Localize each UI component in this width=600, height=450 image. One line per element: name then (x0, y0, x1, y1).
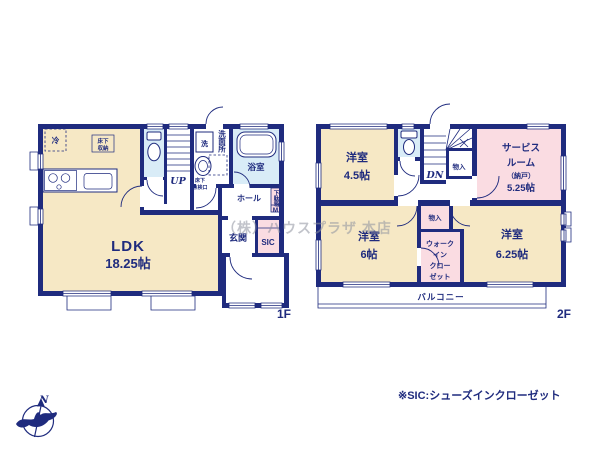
inspection-label-1: 床下 (195, 177, 205, 184)
bathroom-label: 浴室 (247, 162, 265, 172)
stairs-up-label: UP (170, 176, 186, 187)
room-6 (321, 206, 417, 282)
balcony-label: バルコニー (417, 292, 464, 302)
hall-label: ホール (237, 194, 261, 203)
room625-size-label: 6.25帖 (496, 247, 528, 261)
floor1-label: 1F (277, 307, 291, 321)
watermark-text: （株）ハウスプラザ 本店 (222, 220, 392, 236)
floor-storage-label-2: 収納 (97, 144, 109, 152)
toilet-bowl-icon-2f (404, 140, 415, 155)
fridge-label: 冷 (52, 135, 60, 145)
room45-label: 洋室 (346, 150, 368, 164)
sic-label: SIC (261, 238, 275, 247)
wic-label-4: ゼット (430, 272, 451, 281)
toilet-bowl-icon-1f (148, 143, 160, 161)
inspection-label-2: 点検口 (192, 184, 207, 191)
washer-label: 洗 (201, 139, 208, 148)
floor-storage-label-1: 床下 (97, 137, 109, 145)
wic-label-1: ウォーク (426, 239, 454, 248)
kitchen-counter (43, 169, 117, 192)
floorplan-page: LDK 18.25帖 冷 床下 収納 UP 洗 洗面所 床下 点検口 浴室 ホー… (0, 0, 600, 450)
wic-label-2: イン (433, 251, 447, 259)
compass-bird-icon (16, 412, 57, 428)
compass: N (16, 395, 57, 437)
shoe-box-m-label: M (273, 207, 278, 214)
floorplan-image: LDK 18.25帖 冷 床下 収納 UP 洗 洗面所 床下 点検口 浴室 ホー… (0, 0, 600, 450)
service-room-size-label: 5.25帖 (507, 182, 535, 194)
ldk-size-label: 18.25帖 (105, 256, 151, 271)
footnote-sic: ※SIC:シューズインクローゼット (398, 388, 561, 402)
porch-1f (226, 257, 284, 303)
toilet-tank-icon-1f (147, 132, 161, 140)
stairs-dn-label: DN (426, 170, 444, 181)
service-room-label-2: ルーム (507, 158, 536, 169)
room-45 (321, 129, 394, 200)
shoe-box-label: 下駄箱 (273, 190, 280, 208)
washroom-label: 洗面所 (217, 129, 226, 154)
floor2-label: 2F (557, 307, 571, 321)
room45-size-label: 4.5帖 (344, 168, 370, 182)
ldk-label: LDK (111, 238, 145, 255)
wic-label-3: クロー (430, 261, 451, 270)
toilet-tank-icon-2f (401, 131, 417, 138)
closet-mid-label: 物入 (429, 213, 443, 222)
room625-label: 洋室 (501, 227, 523, 241)
service-room-label-3: （納戸） (507, 171, 535, 180)
compass-north-label: N (38, 395, 49, 406)
room6-size-label: 6帖 (360, 247, 377, 261)
closet-stairs-label: 物入 (453, 162, 467, 171)
service-room-label-1: サービス (502, 142, 540, 154)
